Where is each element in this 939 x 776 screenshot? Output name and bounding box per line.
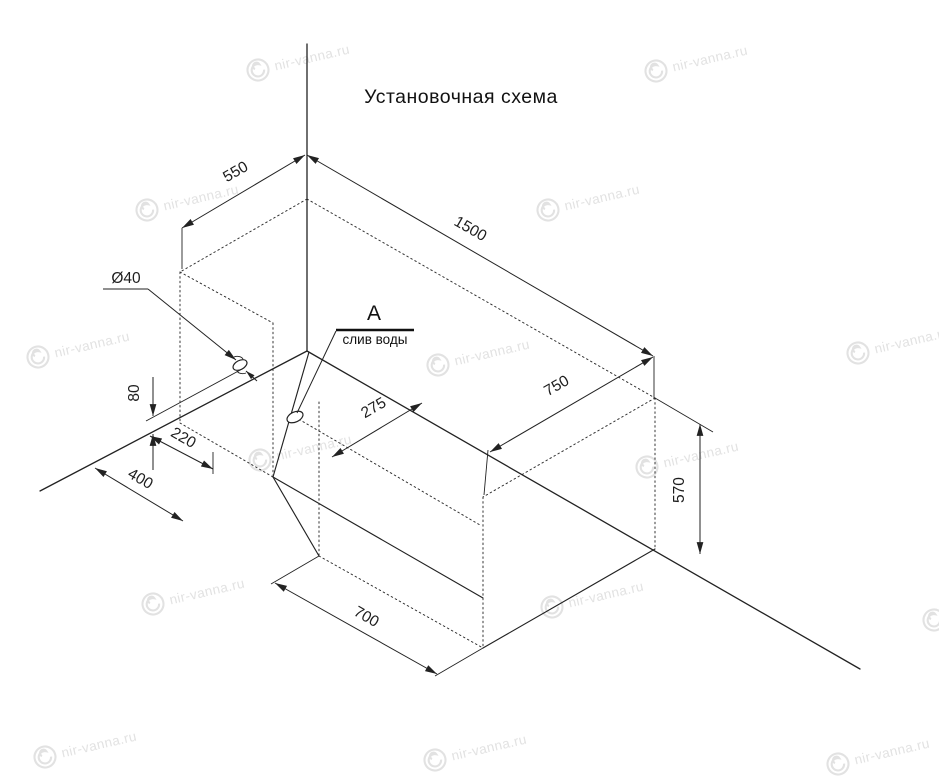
watermark: nir-vanna.ru	[245, 39, 351, 83]
watermark-logo-icon	[247, 447, 272, 472]
installation-diagram-page: nir-vanna.ru nir-vanna.ru nir-vanna.ru n…	[0, 0, 939, 776]
watermark: nir-vanna.ru	[25, 326, 131, 370]
ext-line-750	[484, 450, 488, 495]
tub-foot-bottom-edge	[483, 549, 655, 648]
dim-275-label: 275	[358, 394, 389, 422]
watermark-text: nir-vanna.ru	[453, 337, 531, 369]
watermark: nir-vanna.ru	[422, 729, 528, 773]
ext-line-700-right	[435, 648, 483, 676]
tub-front-lower-edge	[273, 477, 483, 598]
watermark-logo-icon	[32, 744, 57, 769]
watermark: nir-vanna.ru	[140, 573, 246, 617]
dim-750-label: 750	[541, 372, 572, 400]
watermark-logo-icon	[634, 454, 659, 479]
watermark-text: nir-vanna.ru	[671, 43, 749, 75]
watermark: nir-vanna.ru	[643, 40, 749, 84]
dimension-diameter-40: Ø40	[103, 270, 236, 360]
top-back-left-edge	[180, 199, 307, 272]
watermark-text: nir-vanna.ru	[853, 736, 931, 768]
watermark-logo-icon	[245, 57, 270, 82]
ext-line-700-left	[271, 556, 319, 584]
watermark-text: nir-vanna.ru	[60, 729, 138, 761]
dim-dia40-label: Ø40	[111, 270, 141, 287]
dim-80-label: 80	[126, 384, 143, 402]
watermark-logo-icon	[422, 747, 447, 772]
dim-570-label: 570	[671, 477, 688, 503]
ext-line-80	[146, 368, 244, 421]
watermark-logo-icon	[140, 591, 165, 616]
dim-line-750	[490, 357, 653, 452]
ext-line-570	[655, 398, 713, 432]
watermark-text: nir-vanna.ru	[275, 432, 353, 464]
installation-diagram: nir-vanna.ru nir-vanna.ru nir-vanna.ru n…	[0, 0, 939, 776]
dimension-400: 400	[95, 465, 183, 521]
page-title: Установочная схема	[364, 86, 558, 108]
watermark-logo-icon	[25, 344, 50, 369]
dim-line-1500	[307, 155, 653, 356]
watermark	[921, 607, 939, 632]
watermark-logo-icon	[539, 594, 564, 619]
watermark-text: nir-vanna.ru	[450, 732, 528, 764]
dim-1500-label: 1500	[451, 213, 490, 245]
dim-700-label: 700	[351, 603, 382, 631]
watermark-text: nir-vanna.ru	[273, 42, 351, 74]
tub-sloped-edge-lower	[273, 477, 319, 556]
watermark: nir-vanna.ru	[825, 733, 931, 776]
watermark: nir-vanna.ru	[535, 179, 641, 223]
watermark-logo-icon	[825, 751, 850, 776]
drain-holes	[231, 356, 305, 425]
watermark: nir-vanna.ru	[134, 179, 240, 223]
watermark: nir-vanna.ru	[425, 334, 531, 378]
watermark: nir-vanna.ru	[634, 436, 740, 480]
watermark-text: nir-vanna.ru	[53, 329, 131, 361]
watermark: nir-vanna.ru	[247, 429, 353, 473]
dimension-550: 550	[182, 155, 305, 269]
watermark-text: nir-vanna.ru	[168, 576, 246, 608]
dia40-leader-line	[148, 289, 236, 360]
drain-axis-line	[295, 417, 480, 525]
watermark-logo-icon	[425, 352, 450, 377]
watermark: nir-vanna.ru	[32, 726, 138, 770]
foot-top-edge	[483, 398, 655, 497]
dimension-750: 750	[484, 357, 653, 495]
watermark-text: nir-vanna.ru	[662, 439, 740, 471]
envelope-hidden-edges	[180, 199, 655, 648]
watermark-logo-icon	[535, 197, 560, 222]
watermark-text: nir-vanna.ru	[563, 182, 641, 214]
watermark-text: nir-vanna.ru	[567, 579, 645, 611]
watermark: nir-vanna.ru	[539, 576, 645, 620]
watermark: nir-vanna.ru	[845, 322, 939, 366]
watermark-text: nir-vanna.ru	[162, 182, 240, 214]
dim-550-label: 550	[220, 158, 251, 186]
bottom-front-edge	[319, 556, 483, 648]
callout-caption: слив воды	[343, 332, 408, 347]
dimension-80: 80	[126, 368, 257, 470]
watermark-logo-icon	[134, 197, 159, 222]
dimension-570: 570	[655, 398, 713, 554]
dimension-700: 700	[271, 556, 483, 676]
wall-floor-lines	[40, 44, 860, 669]
callout-drain: А слив воды	[297, 302, 414, 413]
callout-letter: А	[367, 302, 381, 325]
floor-line-left	[40, 351, 307, 491]
floor-line-right	[307, 351, 860, 669]
watermark-layer: nir-vanna.ru nir-vanna.ru nir-vanna.ru n…	[25, 39, 939, 776]
head-top-edge	[180, 272, 273, 323]
watermark-logo-icon	[921, 607, 939, 632]
dim-line-700	[275, 583, 437, 674]
watermark-text: nir-vanna.ru	[873, 325, 939, 357]
watermark-logo-icon	[845, 340, 870, 365]
dimension-220: 220	[150, 424, 213, 474]
watermark-logo-icon	[643, 58, 668, 83]
